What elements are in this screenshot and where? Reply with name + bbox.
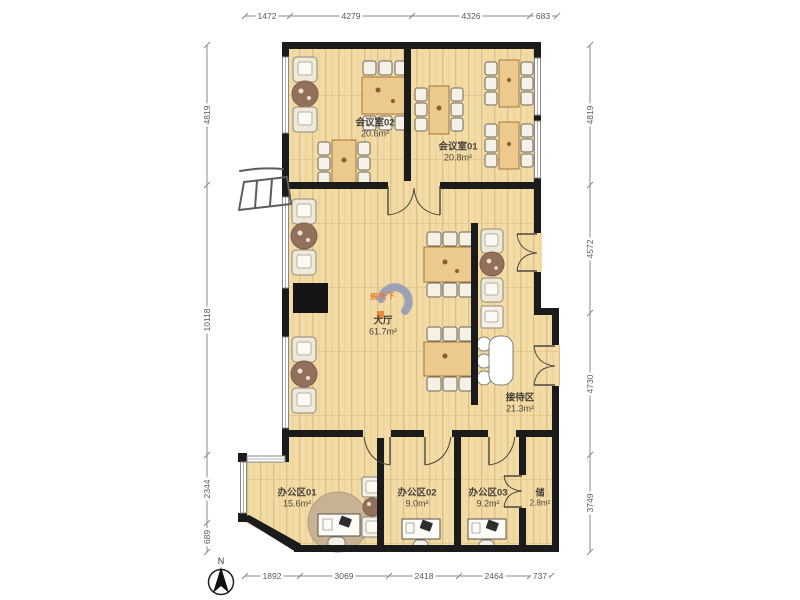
room-area: 9.2m² [468,499,507,509]
conference-table-group [485,60,533,107]
north-compass-icon [209,567,234,595]
window [283,57,289,133]
room-area: 15.6m² [277,499,316,509]
dim-right-1: 4819 [585,104,595,127]
room-area: 2.8m² [530,499,550,509]
conference-table-group [485,122,533,169]
room-label-storage: 储 2.8m² [530,488,550,509]
window [241,462,247,513]
conference-table-group [318,140,370,186]
dimension-line-bottom [242,573,554,579]
room-area: 20.6m² [355,129,394,139]
room-name: 办公区01 [277,488,316,499]
dimension-line-top [242,13,560,19]
dim-bottom-3: 2418 [413,571,436,581]
window [283,197,289,288]
floorplan-page: 1472 4279 4326 683 1892 3069 2418 2464 7… [0,0,800,600]
dim-right-4: 3749 [585,492,595,515]
room-name: 办公区03 [468,488,507,499]
conference-table-group [424,327,473,391]
room-area: 9.0m² [397,499,436,509]
room-area: 21.3m² [506,404,535,414]
dim-bottom-1: 1892 [261,571,284,581]
dim-top-2: 4279 [340,11,363,21]
dim-left-3: 2344 [202,478,212,501]
room-label-office03: 办公区03 9.2m² [468,488,507,509]
dim-bottom-2: 3069 [333,571,356,581]
watermark-text: 房天下 [370,291,396,303]
dim-left-4: 689 [202,528,212,546]
dim-left-2: 10118 [202,306,212,333]
dining-table-group [477,336,513,385]
room-name: 会议室01 [438,142,477,153]
window [535,58,541,115]
window [535,121,541,178]
room-name: 储 [530,488,550,499]
room-label-hall: 大厅 61.7m² [369,316,397,337]
room-name: 接待区 [506,393,535,404]
sofa-set [292,57,318,132]
window [283,337,289,428]
dim-top-3: 4326 [460,11,483,21]
room-label-office01: 办公区01 15.6m² [277,488,316,509]
dim-top-4: 683 [534,11,552,21]
room-name: 办公区02 [397,488,436,499]
conference-table-group [415,86,463,134]
dim-bottom-5: 737 [531,571,549,581]
room-label-meeting01: 会议室01 20.8m² [438,142,477,163]
window [247,456,285,462]
floorplan-drawing [0,0,800,600]
sofa-set [291,337,317,413]
structural-column [293,283,328,313]
conference-table-group [424,232,473,297]
dim-right-2: 4572 [585,238,595,261]
sofa-set [480,229,504,328]
sofa-set [291,199,317,275]
room-area: 61.7m² [369,327,397,337]
dim-bottom-4: 2464 [483,571,506,581]
room-label-meeting02: 会议室02 20.6m² [355,118,394,139]
room-name: 会议室02 [355,118,394,129]
dim-left-1: 4819 [202,104,212,127]
dim-right-3: 4730 [585,373,595,396]
room-name: 大厅 [369,316,397,327]
room-label-office02: 办公区02 9.0m² [397,488,436,509]
room-area: 20.8m² [438,153,477,163]
room-label-reception: 接待区 21.3m² [506,393,535,414]
dim-top-1: 1472 [256,11,279,21]
north-label: N [218,556,225,566]
